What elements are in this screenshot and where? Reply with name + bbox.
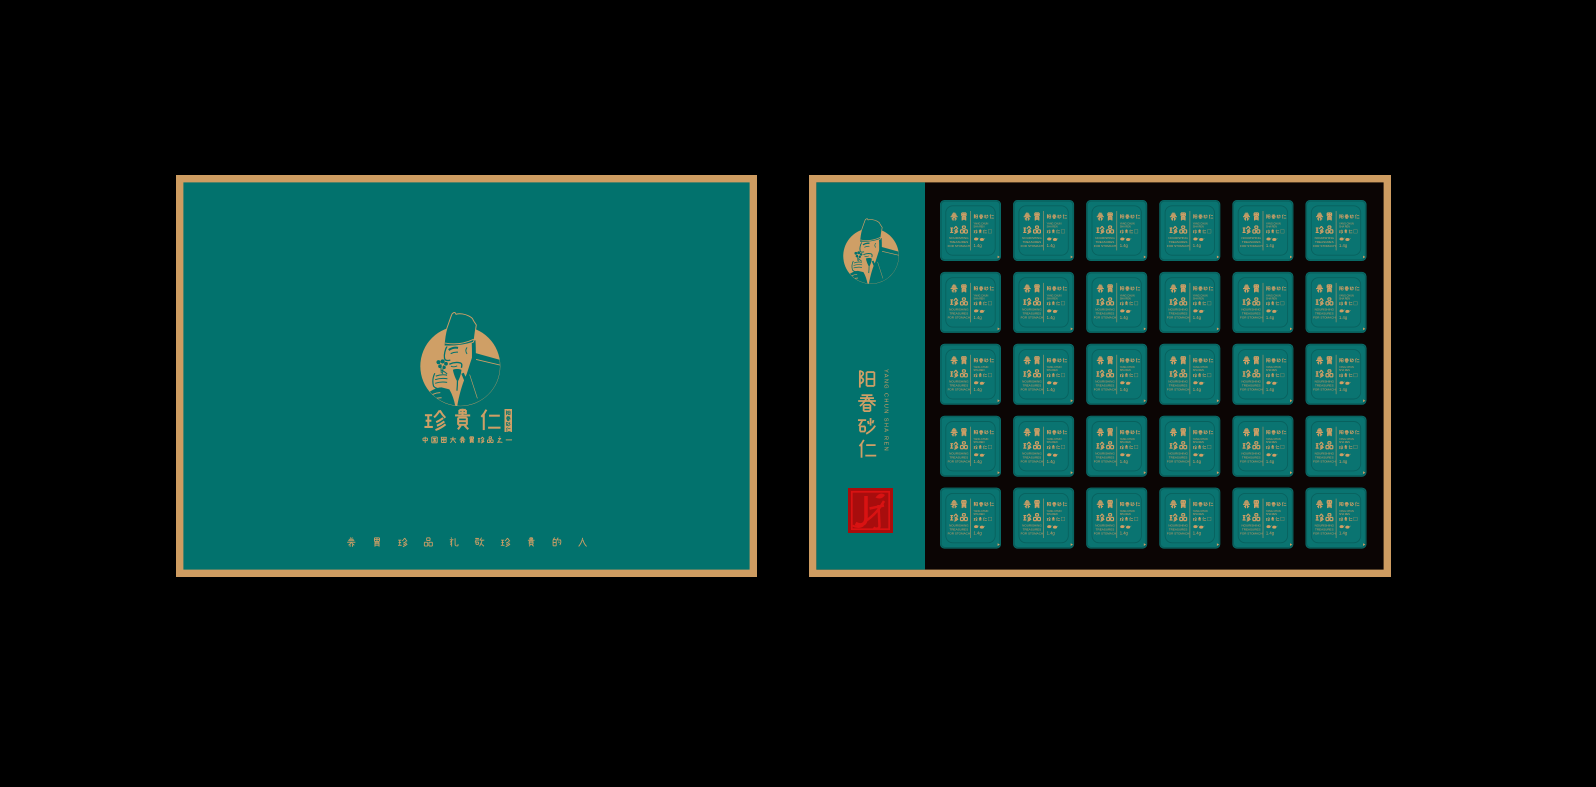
svg-text:YANG CHUN SHA REN: YANG CHUN SHA REN [883, 369, 889, 452]
